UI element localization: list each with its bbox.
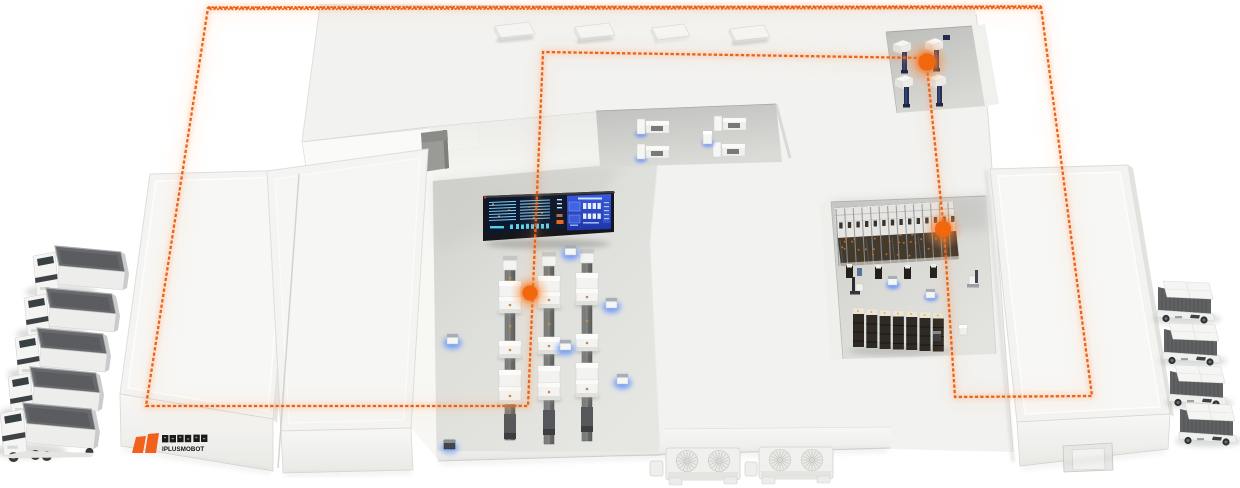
svg-text:IPLUSMOBOT: IPLUSMOBOT [162, 446, 204, 453]
